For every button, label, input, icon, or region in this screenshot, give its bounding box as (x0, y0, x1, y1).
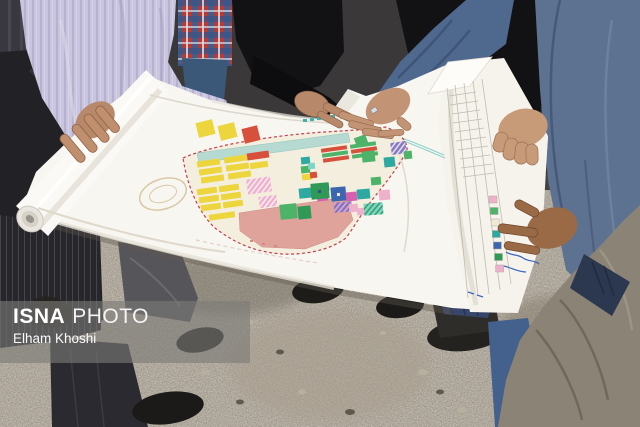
plan-parcel (384, 156, 396, 167)
watermark-title: ISNAPHOTO (13, 306, 250, 328)
watermark-word: PHOTO (72, 305, 149, 328)
legend-cell (496, 265, 504, 272)
legend-cell (493, 242, 501, 249)
watermark-bar: ISNAPHOTO Elham Khoshi (0, 301, 250, 363)
plan-parcel (361, 150, 375, 162)
plan-parcel (308, 163, 316, 170)
watermark-agency: ISNA (13, 305, 65, 328)
plan-parcel (337, 193, 340, 196)
plan-parcel (404, 151, 413, 160)
plan-parcel (297, 205, 311, 219)
plan-parcel (349, 204, 359, 213)
plan-parcel (310, 172, 318, 179)
photo-stage: ISNAPHOTO Elham Khoshi (0, 0, 640, 427)
plan-parcel (279, 203, 297, 220)
plan-parcel (371, 177, 382, 186)
plan-parcel (364, 202, 384, 216)
legend-cell (495, 254, 503, 261)
watermark-credit: Elham Khoshi (13, 332, 250, 346)
legend-cell (491, 219, 499, 226)
plan-parcel (346, 192, 358, 202)
plan-parcel (379, 190, 391, 201)
legend-cell (490, 208, 498, 215)
plan-parcel (357, 188, 371, 199)
plan-parcel (318, 190, 321, 193)
person-plaid-shirt (178, 0, 232, 100)
legend-cell (489, 196, 497, 203)
